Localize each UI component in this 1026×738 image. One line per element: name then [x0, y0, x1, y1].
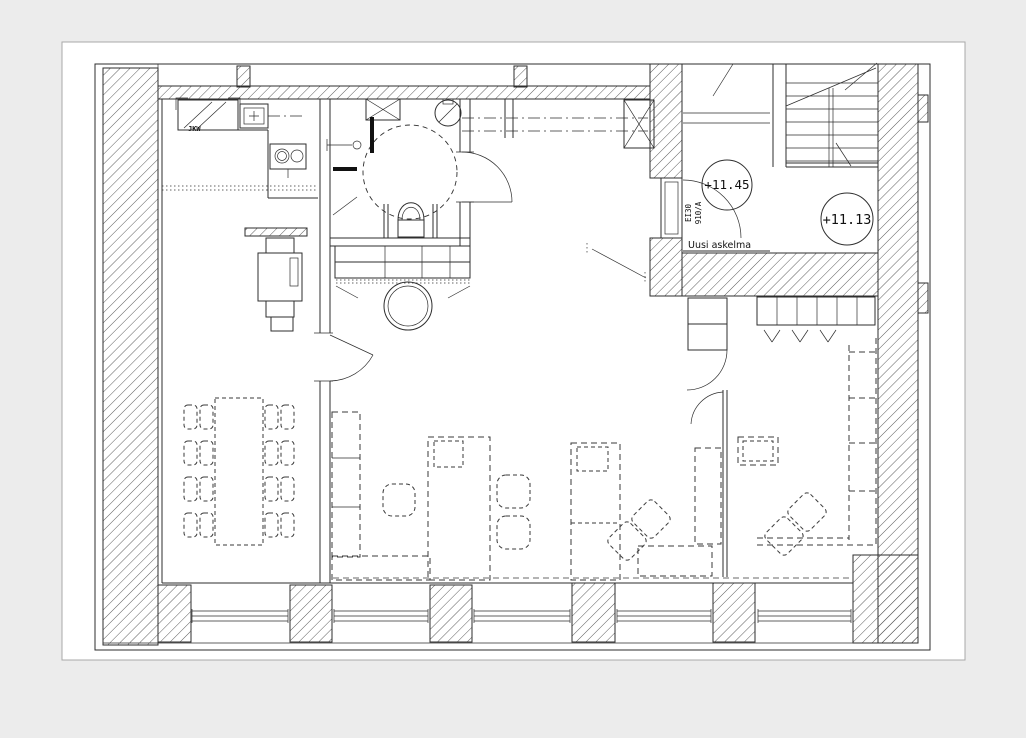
new-step-note: Uusi askelma [688, 240, 751, 251]
level-marker-lower-label: +11.13 [823, 212, 872, 228]
left-exterior-wall [103, 68, 158, 645]
window-4 [617, 609, 711, 623]
appliance-tag: JKW [188, 125, 201, 133]
level-marker-upper-label: +11.45 [704, 177, 749, 192]
stair-hall-wall [650, 64, 682, 178]
floor-plan-drawing: JKW [0, 0, 1026, 738]
desktop-background: JKW [0, 0, 1026, 738]
window-1 [192, 609, 288, 623]
window-5 [758, 609, 851, 623]
top-wall [158, 86, 650, 99]
door-size-tag: 910/A [694, 201, 703, 224]
window-2 [334, 609, 428, 623]
window-3 [474, 609, 570, 623]
door-fire-tag: EI30 [684, 203, 693, 222]
